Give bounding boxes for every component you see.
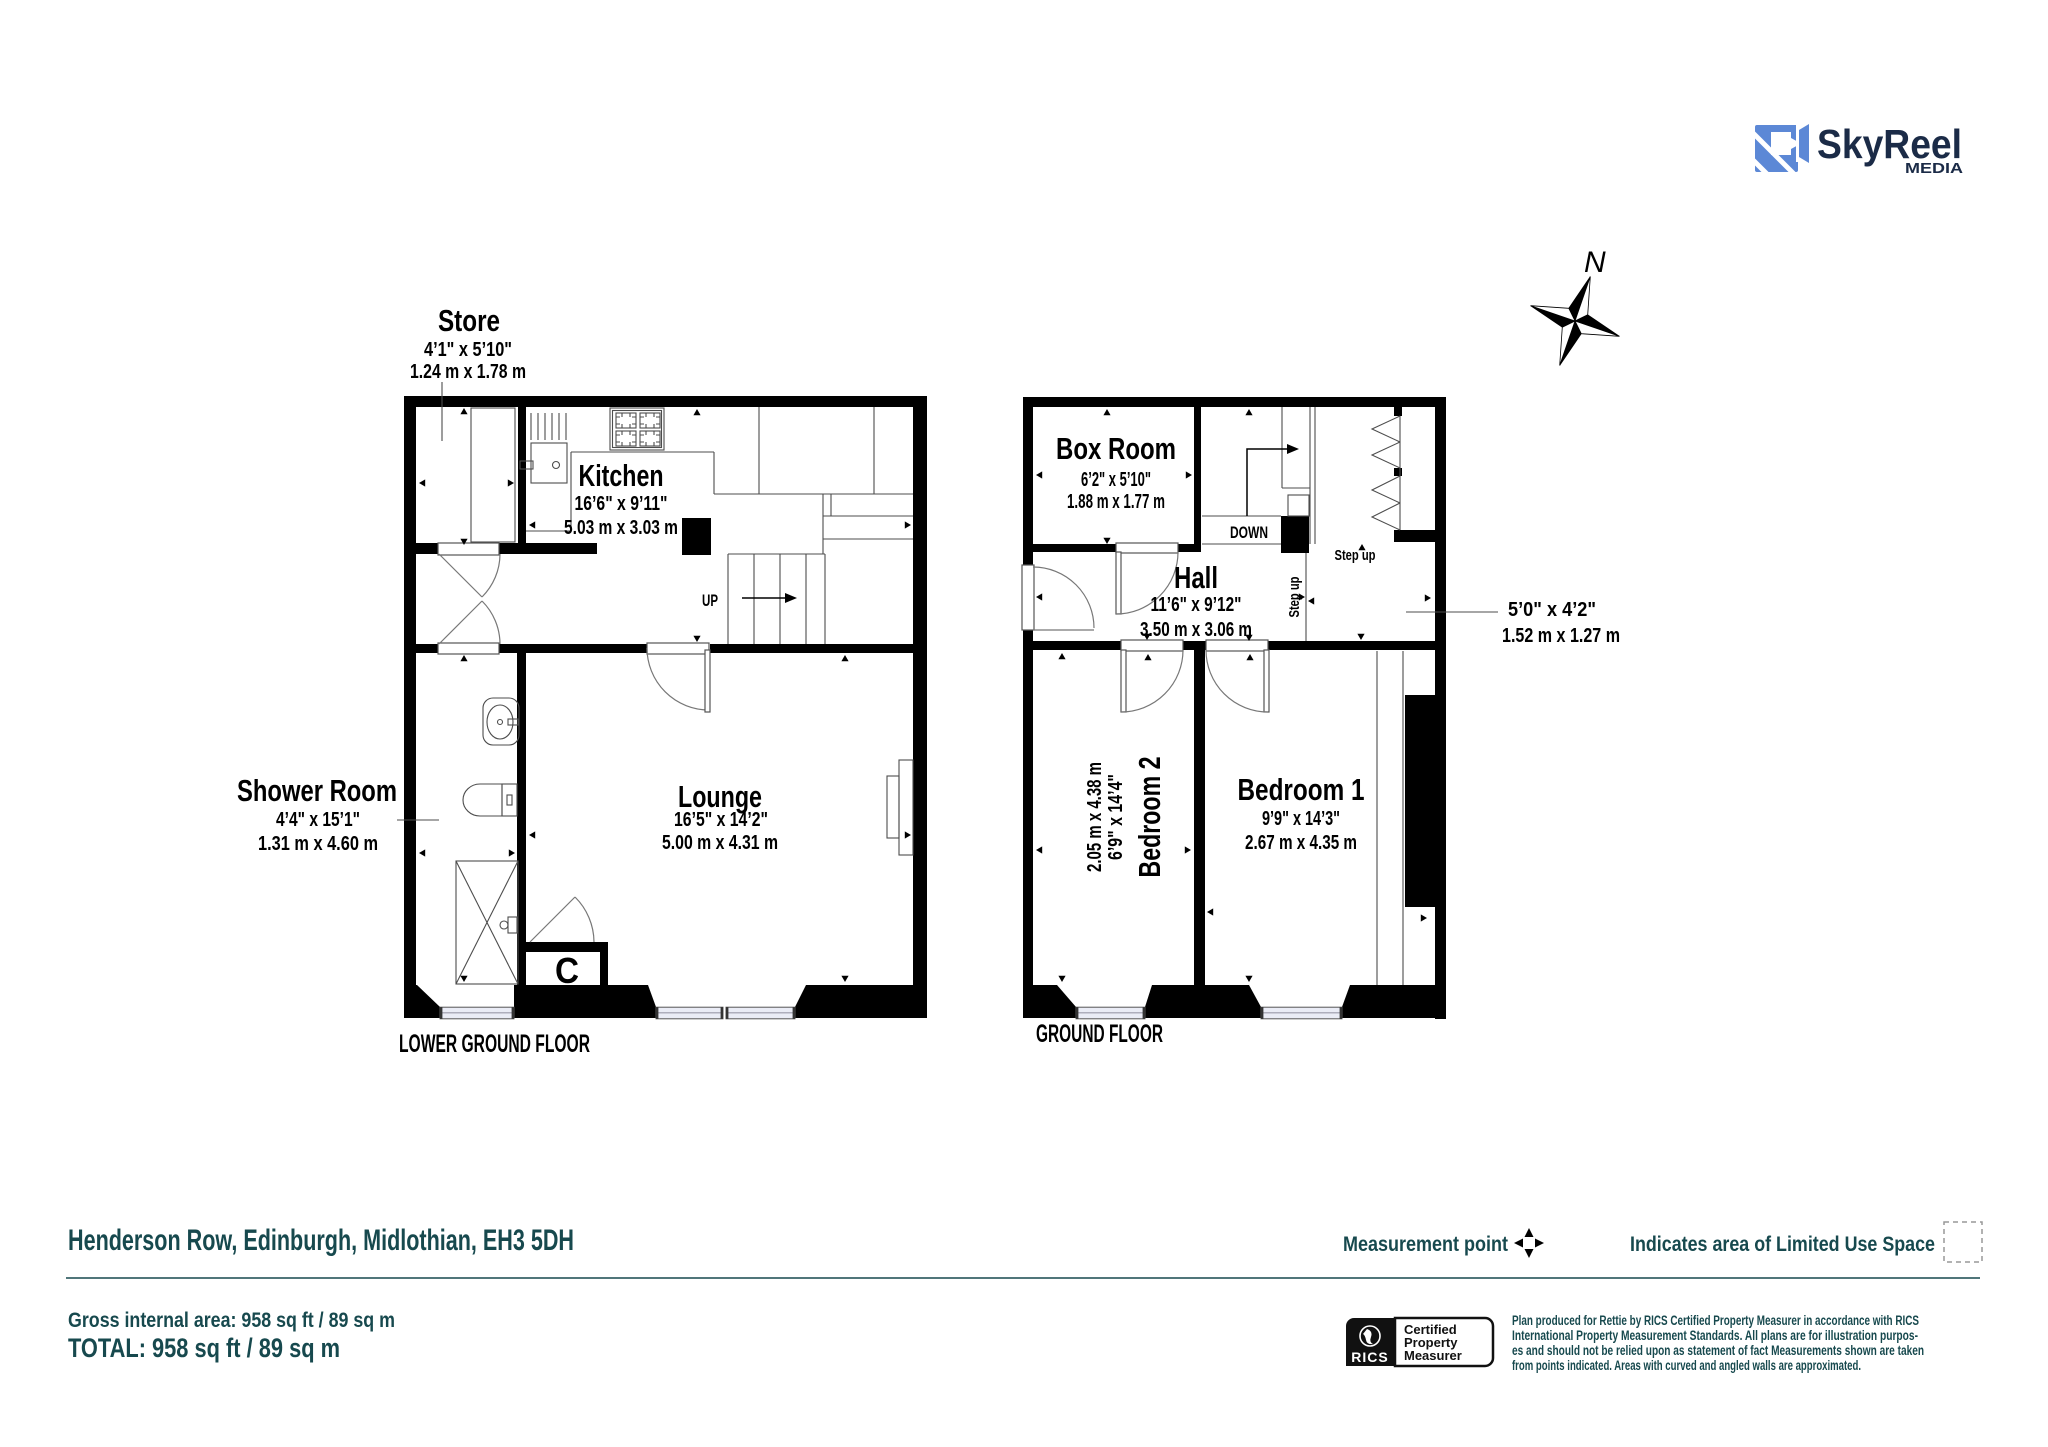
svg-text:1.88 m x 1.77 m: 1.88 m x 1.77 m bbox=[1067, 490, 1165, 513]
svg-text:N: N bbox=[1584, 246, 1606, 279]
svg-text:DOWN: DOWN bbox=[1230, 523, 1268, 542]
svg-text:16’5" x 14’2": 16’5" x 14’2" bbox=[674, 808, 768, 831]
svg-text:International Property Measur: International Property Measurement Stand… bbox=[1512, 1328, 1918, 1343]
svg-text:RICS: RICS bbox=[1351, 1349, 1388, 1365]
svg-text:LOWER GROUND FLOOR: LOWER GROUND FLOOR bbox=[399, 1030, 590, 1058]
svg-text:Measurement point: Measurement point bbox=[1343, 1233, 1508, 1256]
svg-text:4’1" x 5’10": 4’1" x 5’10" bbox=[424, 338, 512, 361]
svg-text:Henderson Row, Edinburgh, Midl: Henderson Row, Edinburgh, Midlothian, EH… bbox=[68, 1224, 574, 1257]
svg-text:UP: UP bbox=[702, 591, 718, 610]
svg-text:Kitchen: Kitchen bbox=[579, 458, 664, 493]
svg-text:6’2" x 5’10": 6’2" x 5’10" bbox=[1081, 468, 1151, 491]
svg-text:Hall: Hall bbox=[1174, 560, 1218, 595]
svg-text:4’4" x 15’1": 4’4" x 15’1" bbox=[276, 808, 360, 831]
svg-text:1.24 m x 1.78 m: 1.24 m x 1.78 m bbox=[410, 360, 526, 383]
svg-text:MEDIA: MEDIA bbox=[1905, 160, 1963, 177]
svg-text:2.67 m x 4.35 m: 2.67 m x 4.35 m bbox=[1245, 831, 1357, 854]
svg-text:5.00 m x 4.31 m: 5.00 m x 4.31 m bbox=[662, 831, 778, 854]
svg-text:Indicates area of Limited Use: Indicates area of Limited Use Space bbox=[1630, 1233, 1935, 1256]
svg-text:TOTAL: 958 sq ft / 89 sq m: TOTAL: 958 sq ft / 89 sq m bbox=[68, 1333, 340, 1363]
svg-text:Bedroom 2: Bedroom 2 bbox=[1132, 757, 1167, 878]
svg-text:Store: Store bbox=[438, 303, 500, 338]
svg-text:6’9" x 14’4": 6’9" x 14’4" bbox=[1104, 774, 1127, 860]
svg-text:C: C bbox=[555, 950, 579, 991]
svg-text:es and should not be relied up: es and should not be relied upon as stat… bbox=[1512, 1343, 1924, 1358]
svg-text:Box Room: Box Room bbox=[1056, 431, 1176, 466]
svg-text:11’6" x 9’12": 11’6" x 9’12" bbox=[1151, 593, 1242, 616]
svg-text:Measurer: Measurer bbox=[1404, 1348, 1462, 1363]
svg-text:16’6" x 9’11": 16’6" x 9’11" bbox=[575, 492, 668, 515]
svg-text:9’9" x 14’3": 9’9" x 14’3" bbox=[1262, 807, 1340, 830]
svg-text:Bedroom 1: Bedroom 1 bbox=[1238, 772, 1365, 807]
svg-text:5.03 m x 3.03 m: 5.03 m x 3.03 m bbox=[564, 516, 678, 539]
svg-text:3.50 m x 3.06 m: 3.50 m x 3.06 m bbox=[1140, 618, 1252, 641]
svg-text:from points indicated. Areas w: from points indicated. Areas with curved… bbox=[1512, 1358, 1861, 1373]
svg-text:2.05 m x 4.38 m: 2.05 m x 4.38 m bbox=[1083, 762, 1106, 872]
svg-text:1.52 m x 1.27 m: 1.52 m x 1.27 m bbox=[1502, 624, 1620, 647]
svg-text:Step up: Step up bbox=[1335, 547, 1376, 564]
svg-text:Shower Room: Shower Room bbox=[237, 773, 397, 808]
svg-text:1.31 m x 4.60 m: 1.31 m x 4.60 m bbox=[258, 832, 378, 855]
svg-text:Plan produced for Rettie by RI: Plan produced for Rettie by RICS Certifi… bbox=[1512, 1313, 1919, 1328]
svg-text:5’0" x 4’2": 5’0" x 4’2" bbox=[1508, 598, 1596, 621]
svg-text:GROUND FLOOR: GROUND FLOOR bbox=[1036, 1020, 1163, 1048]
svg-text:Gross internal area: 958 sq ft: Gross internal area: 958 sq ft / 89 sq m bbox=[68, 1309, 395, 1332]
